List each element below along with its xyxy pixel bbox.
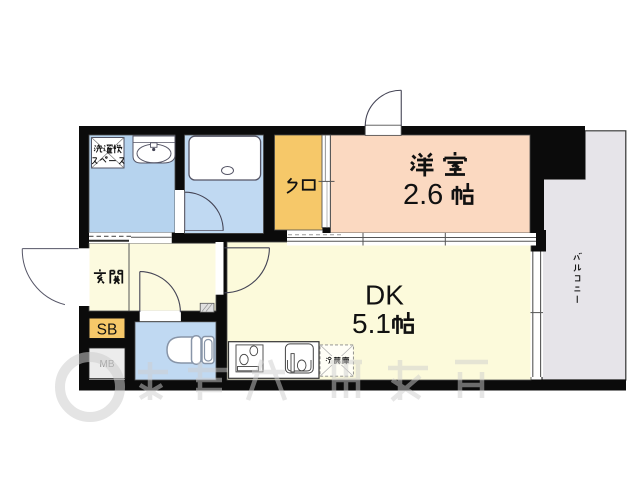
svg-text:DK: DK [365, 280, 404, 311]
svg-text:2.6: 2.6 [403, 179, 443, 211]
svg-text:5.1: 5.1 [352, 308, 391, 339]
svg-text:SB: SB [97, 322, 118, 339]
